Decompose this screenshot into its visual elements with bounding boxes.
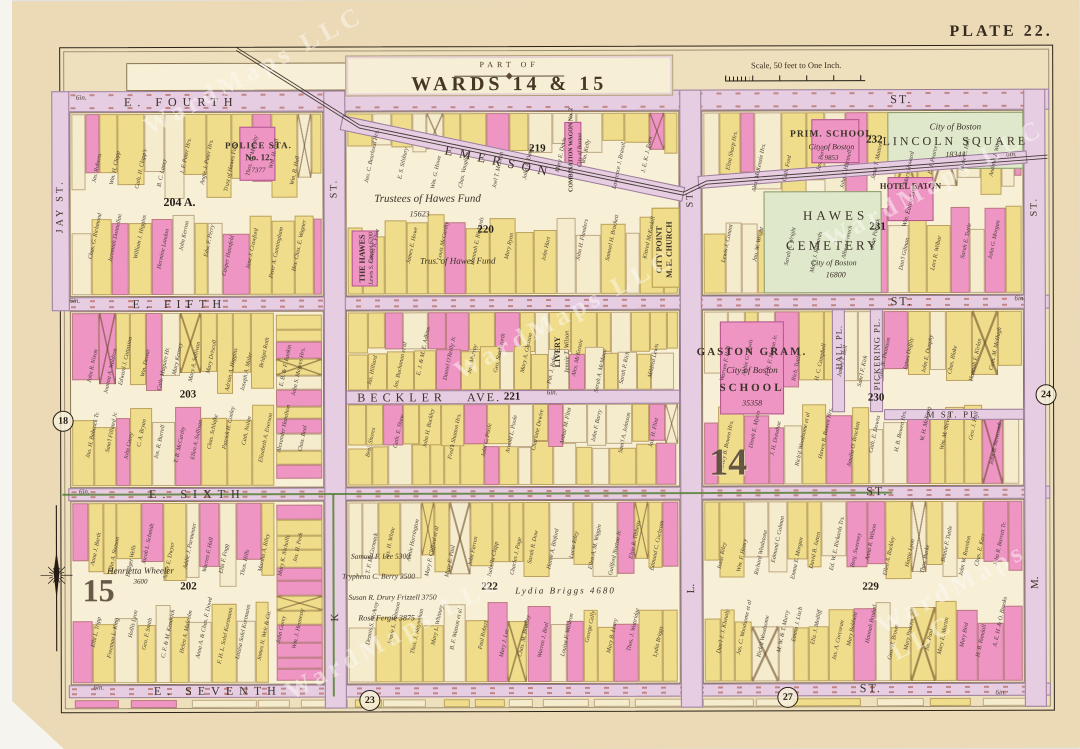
- pipe-size-label: 6in.: [1006, 151, 1017, 158]
- block-number: 232: [866, 135, 883, 146]
- place-label: M. E. CHURCH: [666, 221, 674, 277]
- place-label: COMBINATION WAGON No. 2: [568, 108, 574, 192]
- place-label: Trus. of Hawes Fund: [420, 257, 496, 266]
- compass-line: [60, 577, 64, 579]
- adjacent-plate-ref: 24: [1036, 384, 1057, 405]
- street-label: ST.: [866, 485, 888, 497]
- pipe-size-label: 6in.: [69, 298, 80, 305]
- street-label: L.: [686, 584, 697, 594]
- compass-needle: [53, 551, 59, 599]
- title-cartouche: PART OF WARDS 14 & 15: [345, 55, 673, 97]
- street-label: ST.: [891, 295, 913, 307]
- labels-layer: E. FOURTHST.E. FIFTHST.E. SIXTHST.E. SEV…: [11, 0, 1080, 749]
- street-label: PICKERING PL.: [873, 318, 882, 391]
- adjacent-plate-ref: 18: [53, 411, 74, 432]
- street-label: E. FIFTH: [132, 298, 227, 310]
- compass-line: [60, 572, 64, 574]
- place-label: 3600: [134, 579, 148, 586]
- place-label: THE HAWES: [359, 235, 367, 283]
- paper-sheet: PLATE 22. Jas. RobertsWm. H. ClappCath. …: [11, 0, 1080, 749]
- ward-number: 14: [709, 443, 747, 481]
- block-number: 202: [180, 581, 197, 592]
- street-label: ST.: [1030, 197, 1040, 216]
- scale-note: Scale, 50 feet to One Inch.: [711, 57, 1031, 88]
- compass-line: [49, 572, 53, 574]
- street-label: K: [330, 614, 341, 622]
- place-label: POLICE STA.: [225, 141, 292, 150]
- pipe-size-label: 6in.: [93, 685, 104, 692]
- ward-number: 15: [83, 574, 115, 606]
- street-label: M.: [1030, 576, 1041, 589]
- scan-edge-left: [0, 0, 12, 749]
- street-label: ST.: [860, 682, 882, 694]
- place-label: 35358: [742, 399, 762, 407]
- pipe-size-label: 6in.: [79, 489, 90, 496]
- block-number: 229: [862, 582, 879, 593]
- scale-bar-tick: [725, 76, 726, 81]
- street-label: M ST. PL.: [926, 410, 981, 419]
- place-label: Samuel F. Lee 5300: [351, 553, 410, 561]
- place-label: 16800: [826, 271, 846, 279]
- place-label: Susan R. Drury Frizzell 3750: [349, 594, 437, 602]
- compass-line: [59, 578, 65, 584]
- place-label: Jennie T. Wilson: [565, 331, 572, 374]
- compass-line: [48, 567, 54, 573]
- pipe-size-label: 6in.: [547, 389, 558, 396]
- street-label: ST.: [686, 188, 696, 207]
- block-number: 231: [869, 222, 886, 233]
- place-label: Lydia Briggs 4680: [515, 586, 616, 595]
- block-number: 221: [504, 392, 521, 403]
- place-label: LINCOLN SQUARE: [883, 135, 1029, 147]
- place-label: City of Boston: [809, 143, 855, 151]
- street-label: AVE.: [467, 391, 501, 403]
- adjacent-plate-ref: 23: [359, 690, 380, 711]
- place-label: Lewis S. Conant 6200: [369, 232, 375, 285]
- place-label: City of Boston: [930, 122, 982, 131]
- street-label: E. FOURTH: [124, 96, 239, 108]
- pipe-size-label: 6in.: [76, 95, 87, 102]
- place-label: 9853: [824, 155, 838, 162]
- compass-line: [48, 578, 54, 584]
- block-number: 219: [529, 144, 546, 155]
- street-label: HALL PL.: [835, 325, 844, 370]
- place-label: City of Boston: [811, 259, 857, 267]
- compass-rose-icon: [36, 499, 80, 659]
- street-label: E. SEVENTH: [154, 685, 282, 697]
- place-label: 7377: [251, 167, 265, 174]
- compass-line: [49, 577, 53, 579]
- block-number: 230: [868, 393, 885, 404]
- place-label: Tryphena C. Berry 3500: [342, 573, 415, 581]
- place-label: Rose Fergie 3875: [358, 614, 415, 622]
- map-title: WARDS 14 & 15: [411, 74, 607, 95]
- pipe-size-label: 6in.: [995, 689, 1006, 696]
- scale-bar-tick: [779, 75, 780, 80]
- pipe-size-label: 6in.: [1014, 295, 1025, 302]
- street-label: E. SIXTH: [149, 488, 246, 500]
- place-label: GASTON GRAM.: [697, 347, 808, 358]
- compass-line: [59, 567, 65, 573]
- place-label: SCHOOL: [719, 383, 784, 394]
- place-label: CITY POINT: [656, 226, 664, 273]
- atlas-plate-scan: PLATE 22. Jas. RobertsWm. H. ClappCath. …: [0, 0, 1080, 749]
- place-label: 18344: [945, 151, 965, 159]
- street-label: BECKLER: [357, 391, 447, 403]
- place-label: PRIM. SCHOOL: [790, 130, 873, 140]
- scale-bar-tick: [860, 75, 861, 80]
- scale-bar-subticks: [725, 76, 749, 80]
- adjacent-plate-ref: 27: [777, 687, 798, 708]
- place-label: 15623: [410, 210, 430, 218]
- place-label: Henrietta Wheeler: [107, 566, 174, 575]
- scale-bar: [725, 75, 865, 81]
- place-label: City of Boston: [577, 133, 583, 167]
- block-number: 204 A.: [164, 196, 196, 208]
- place-label: HAWES: [803, 209, 868, 222]
- place-label: Trustees of Hawes Fund: [374, 194, 481, 205]
- street-label: JAY ST.: [55, 179, 65, 233]
- place-label: CEMETERY: [786, 239, 879, 252]
- block-number: 220: [477, 225, 494, 236]
- title-part-of: PART OF: [480, 61, 539, 69]
- scale-bar-tick: [833, 75, 834, 80]
- place-label: No. 12.: [245, 153, 272, 162]
- scale-label: Scale, 50 feet to One Inch.: [751, 61, 841, 70]
- block-number: 203: [180, 389, 197, 400]
- scale-bar-tick: [806, 75, 807, 80]
- street-label: ST.: [890, 93, 912, 105]
- scale-bar-tick: [752, 75, 753, 80]
- place-label: LIVERY: [554, 337, 562, 368]
- block-number: 222: [481, 582, 498, 593]
- place-label: City of Boston: [726, 366, 778, 375]
- street-label: ST.: [329, 179, 339, 198]
